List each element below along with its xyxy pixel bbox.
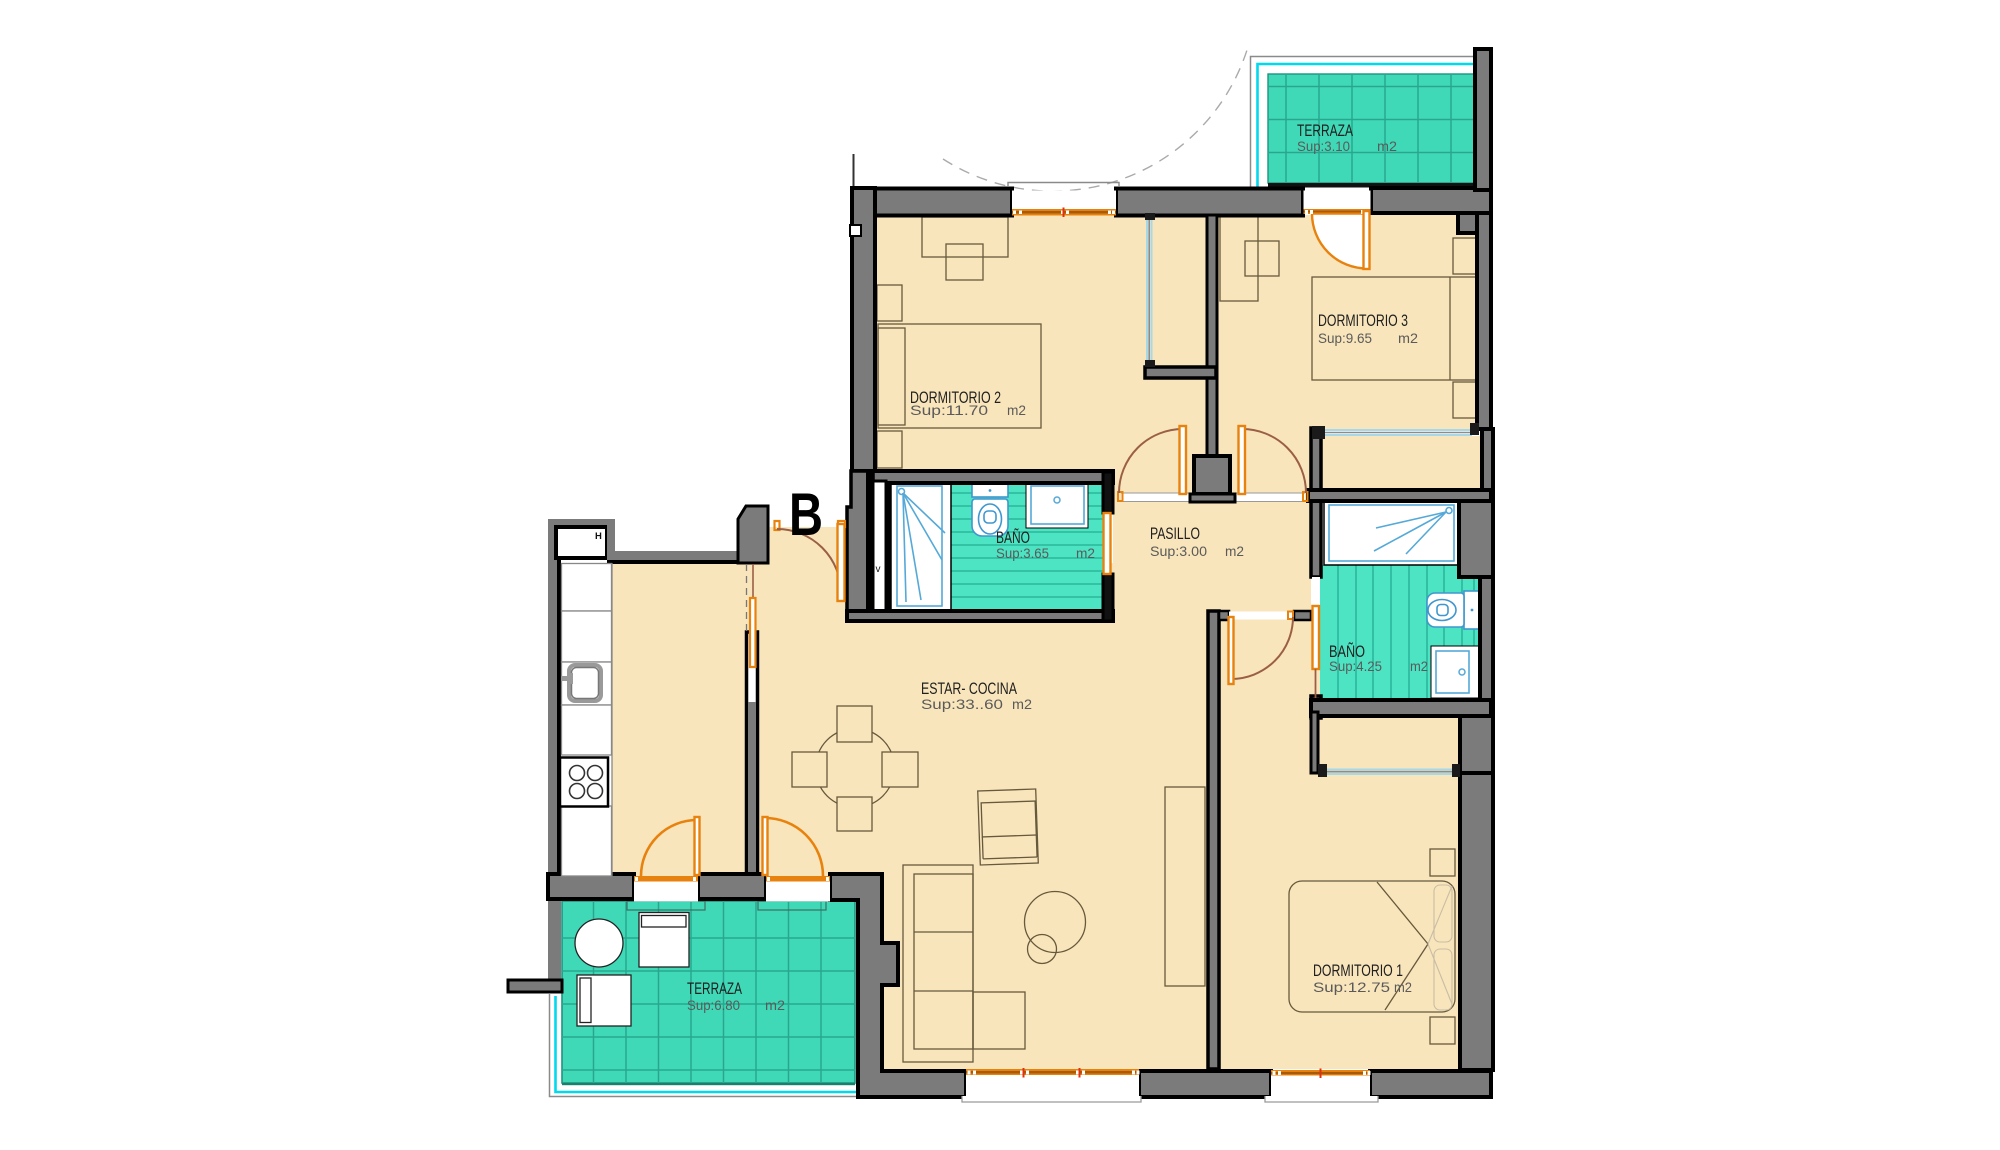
svg-text:m2: m2 <box>1076 545 1095 561</box>
svg-text:BAÑO: BAÑO <box>996 527 1030 547</box>
svg-text:m2: m2 <box>1377 138 1397 154</box>
svg-text:m2: m2 <box>1394 979 1412 995</box>
svg-text:Sup:9.65: Sup:9.65 <box>1318 330 1372 346</box>
svg-text:Sup:12.75: Sup:12.75 <box>1313 979 1390 995</box>
svg-text:m2: m2 <box>1225 543 1244 559</box>
svg-text:m2: m2 <box>765 997 785 1013</box>
svg-text:TERRAZA: TERRAZA <box>687 980 742 998</box>
svg-text:m2: m2 <box>1012 696 1032 712</box>
svg-text:Sup:6.80: Sup:6.80 <box>687 997 740 1013</box>
svg-text:m2: m2 <box>1398 330 1418 346</box>
svg-text:H: H <box>595 531 602 542</box>
svg-text:B: B <box>789 481 823 548</box>
svg-text:v: v <box>876 564 881 575</box>
svg-text:Sup:4.25: Sup:4.25 <box>1329 658 1382 674</box>
svg-text:DORMITORIO 1: DORMITORIO 1 <box>1313 962 1403 980</box>
svg-text:DORMITORIO 3: DORMITORIO 3 <box>1318 312 1408 330</box>
svg-text:Sup:3.10: Sup:3.10 <box>1297 138 1350 154</box>
svg-text:m2: m2 <box>1410 658 1428 674</box>
svg-text:Sup:3.00: Sup:3.00 <box>1150 543 1207 559</box>
svg-text:m2: m2 <box>1007 402 1026 418</box>
svg-text:PASILLO: PASILLO <box>1150 525 1200 543</box>
svg-text:Sup:33..60: Sup:33..60 <box>921 696 1003 712</box>
svg-text:Sup:3.65: Sup:3.65 <box>996 545 1049 561</box>
svg-text:Sup:11.70: Sup:11.70 <box>910 402 988 418</box>
